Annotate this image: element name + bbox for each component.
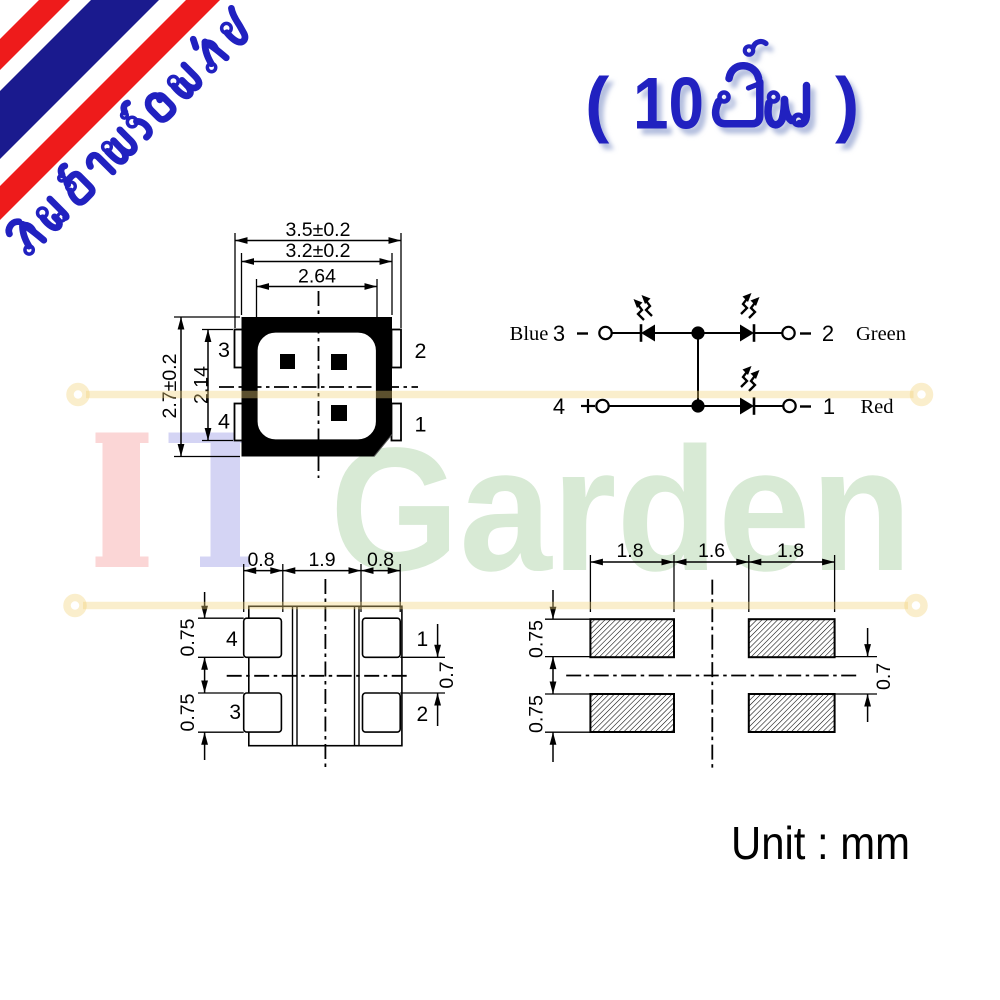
svg-text:3: 3 (229, 701, 241, 724)
svg-text:0.8: 0.8 (247, 549, 274, 571)
svg-text:3.5±0.2: 3.5±0.2 (286, 219, 351, 241)
svg-text:Blue: Blue (510, 323, 549, 345)
svg-text:): ) (835, 64, 859, 145)
svg-text:Garden: Garden (330, 412, 912, 608)
svg-text:Green: Green (856, 323, 906, 345)
svg-text:(: ( (585, 64, 610, 145)
svg-text:0.7: 0.7 (436, 661, 458, 688)
svg-text:0.75: 0.75 (526, 695, 548, 733)
svg-text:2: 2 (822, 321, 834, 346)
svg-text:4: 4 (226, 628, 238, 651)
svg-text:10: 10 (633, 64, 704, 145)
svg-text:0.75: 0.75 (177, 618, 199, 656)
svg-text:3: 3 (218, 338, 230, 362)
svg-text:2: 2 (416, 703, 428, 726)
svg-text:1.9: 1.9 (308, 549, 335, 571)
svg-text:1: 1 (416, 628, 428, 651)
svg-text:Red: Red (860, 396, 893, 418)
svg-text:1.8: 1.8 (777, 540, 804, 562)
svg-text:0.75: 0.75 (526, 620, 548, 658)
svg-text:3: 3 (553, 321, 565, 346)
svg-text:0.7: 0.7 (873, 663, 895, 690)
svg-text:1: 1 (415, 413, 427, 437)
svg-text:Unit : mm: Unit : mm (731, 817, 910, 869)
svg-text:1.8: 1.8 (616, 540, 643, 562)
svg-text:0.75: 0.75 (177, 693, 199, 731)
svg-text:1.6: 1.6 (698, 540, 725, 562)
svg-text:2.14: 2.14 (191, 366, 213, 404)
svg-text:2: 2 (415, 339, 427, 363)
svg-text:2.64: 2.64 (298, 266, 336, 288)
svg-text:3.2±0.2: 3.2±0.2 (286, 240, 351, 262)
svg-text:0.8: 0.8 (367, 549, 394, 571)
svg-text:4: 4 (218, 410, 230, 434)
svg-text:2.7±0.2: 2.7±0.2 (159, 354, 181, 419)
